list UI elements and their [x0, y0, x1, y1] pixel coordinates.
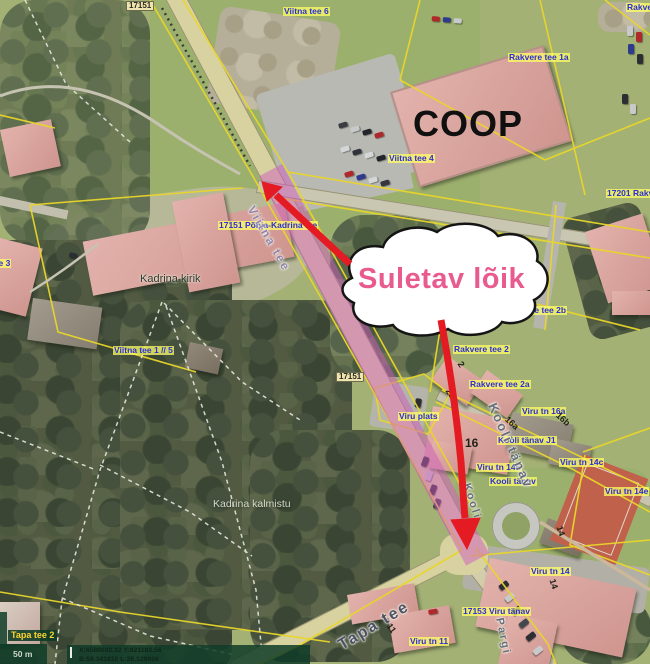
scale-tick [70, 647, 72, 658]
coordinates-bl: B:59.341810 L:26.129926 [79, 656, 310, 664]
coordinates-bar: X:6580082.32 Y:621183.56 B:59.341810 L:2… [67, 645, 310, 664]
arrow-south [441, 320, 465, 518]
callout-text: Suletav lõik [358, 263, 525, 296]
aerial-map-canvas[interactable]: 17151Viitna tee 6RakveRakvere tee 1aViit… [0, 0, 650, 664]
coordinates-xy: X:6580082.32 Y:621183.56 [79, 647, 310, 656]
arrow-south-head [451, 518, 480, 549]
scale-bar: 50 m [0, 644, 47, 664]
scale-distance: 50 m [13, 649, 32, 659]
annotation-layer [0, 0, 650, 664]
left-edge-strip [0, 612, 7, 648]
arrow-north [276, 195, 350, 264]
